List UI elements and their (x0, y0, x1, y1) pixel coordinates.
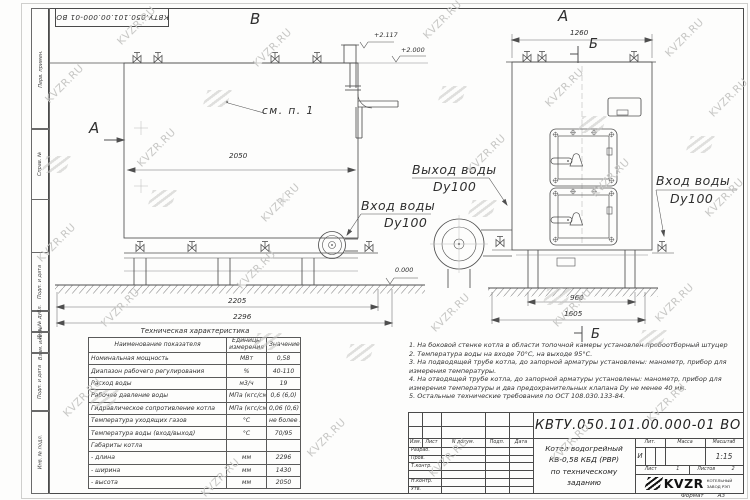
outlet-label: Выход воды (412, 162, 497, 177)
dim-2296: 2296 (233, 312, 251, 321)
cell: 1430 (267, 464, 301, 476)
scale-header: Масштаб (705, 438, 743, 447)
cell: °С (227, 414, 267, 426)
front-dim-top (512, 34, 652, 58)
cell: Габариты котла (89, 439, 227, 451)
cell: МПа (кгс/см2) (227, 402, 267, 414)
kvzr-stripes-icon (644, 477, 663, 490)
col-data: Дата (509, 438, 533, 447)
title-block: КВТУ.050.101.00.000-01 ВО Изм. Лист N до… (408, 412, 744, 494)
col-header: Единицы измерения (227, 338, 267, 353)
sheets-cell: Листов 2 (689, 465, 743, 474)
cell: Температура воды (вход/выход) (89, 427, 227, 439)
cell: Диапазон рабочего регулирования (89, 365, 227, 377)
cell: м3/ч (227, 377, 267, 389)
dim-1605: 1605 (564, 309, 582, 318)
table-row: Диапазон рабочего регулирования%40-110 (89, 365, 301, 377)
doc-title-line2: КВ-0,58 КБД (РВР) (549, 454, 619, 465)
cell: - высота (89, 476, 227, 488)
table-row: Температура воды (вход/выход)°С70/95 (89, 427, 301, 439)
note-item: 3. На подводящей трубе котла, до запорно… (409, 358, 741, 375)
table-row: Габариты котла (89, 439, 301, 451)
outlet-size: Dy100 (433, 179, 476, 194)
cell: - ширина (89, 464, 227, 476)
burner-side (319, 232, 359, 259)
spec-table-title: Техническая характеристика (88, 327, 302, 335)
sheet-cell: Лист 1 (635, 465, 689, 474)
cell: 40-110 (267, 365, 301, 377)
elevation-2117: +2.117 (374, 31, 398, 39)
dim-960: 960 (570, 293, 584, 302)
dim-2205: 2205 (228, 296, 246, 305)
cell: МВт (227, 353, 267, 365)
cell: 0,06 (0,6) (267, 402, 301, 414)
lit-value: И (635, 447, 645, 465)
cell: % (227, 365, 267, 377)
table-row: - ширинамм1430 (89, 464, 301, 476)
row-tkontr: Т.контр. (411, 462, 441, 470)
doc-number: КВТУ.050.101.00.000-01 ВО (533, 413, 743, 438)
row-utv: Утв. (411, 486, 441, 494)
col-izm: Изм. (409, 438, 422, 447)
cell: мм (227, 476, 267, 488)
cell: Гидравлическое сопротивление котла (89, 402, 227, 414)
cell: 2050 (267, 476, 301, 488)
col-doc: N докум. (441, 438, 485, 447)
upper-door (550, 129, 617, 186)
brand-subtitle: КОТЕЛЬНЫЙ ЗАВОД РЭП (707, 478, 733, 488)
col-podp: Подп. (485, 438, 509, 447)
inlet-label-side: Вход воды (361, 198, 435, 213)
col-header: Значение (267, 338, 301, 353)
cell: 0,6 (6,0) (267, 390, 301, 402)
brand-sub-line2: ЗАВОД РЭП (707, 484, 733, 489)
table-row: - длинамм2296 (89, 452, 301, 464)
cell: Рабочее давление воды (89, 390, 227, 402)
technical-notes: 1. На боковой стенке котла в области топ… (409, 341, 741, 401)
scale-value: 1:15 (705, 447, 743, 465)
inlet-label-front: Вход воды (656, 173, 730, 188)
section-label-a-side: А (89, 119, 99, 137)
table-row: Расход водым3/ч19 (89, 377, 301, 389)
section-label-v: В (250, 10, 260, 28)
cell: Расход воды (89, 377, 227, 389)
front-dimensions (492, 292, 645, 324)
row-nkontr: Н.контр. (411, 478, 441, 486)
cell: Температура уходящих газов (89, 414, 227, 426)
lower-door (550, 188, 617, 245)
side-dimensions (57, 289, 392, 327)
inlet-size-front: Dy100 (670, 191, 713, 206)
brand-name: KVZR (664, 476, 704, 491)
cell: не более 280 (267, 414, 301, 426)
sheet-value: 1 (676, 467, 679, 472)
table-row: Номинальная мощностьМВт0,58 (89, 353, 301, 365)
spec-table: Наименование показателя Единицы измерени… (88, 337, 301, 489)
cell: 2296 (267, 452, 301, 464)
row-prov: Пров. (411, 455, 441, 463)
sheets-value: 2 (732, 467, 735, 472)
cell: 0,58 (267, 353, 301, 365)
cell: °С (227, 427, 267, 439)
row-razrab: Разраб. (411, 447, 441, 455)
sheets-label: Листов (697, 467, 715, 472)
inlet-size-side: Dy100 (384, 215, 427, 230)
cell: мм (227, 464, 267, 476)
format-label: Формат А3 (664, 493, 742, 499)
table-row: - высотамм2050 (89, 476, 301, 488)
section-label-b-top: Б (589, 37, 598, 52)
format-value: А3 (718, 493, 725, 499)
company-logo: KVZR КОТЕЛЬНЫЙ ЗАВОД РЭП (635, 474, 743, 493)
dim-2050: 2050 (229, 151, 247, 160)
cell (227, 439, 267, 451)
cell (267, 439, 301, 451)
elevation-2000: +2.000 (401, 46, 425, 54)
cell: - длина (89, 452, 227, 464)
mass-header: Масса (665, 438, 705, 447)
lit-header: Лит. (635, 438, 665, 447)
dim-1260: 1260 (570, 28, 588, 37)
cell: Номинальная мощность (89, 353, 227, 365)
doc-title: Котел водогрейный КВ-0,58 КБД (РВР) по т… (533, 438, 635, 493)
sheet-label: Лист (645, 467, 657, 472)
format-word: Формат (681, 493, 704, 499)
drawing-sheet: Перв. примен. Справ. № Подп. и дата Инв.… (0, 0, 750, 500)
table-row: Рабочее давление водыМПа (кгс/см2)0,6 (6… (89, 390, 301, 402)
elevation-0000: 0.000 (395, 266, 413, 274)
cell: МПа (кгс/см2) (227, 390, 267, 402)
doc-title-line3: по техническому заданию (533, 466, 635, 489)
note-item: 4. На отводящей трубе котла, до запорной… (409, 375, 741, 392)
note-item: 2. Температура воды на входе 70°С, на вы… (409, 350, 741, 359)
cell: 70/95 (267, 427, 301, 439)
view-label-a-front: А (558, 7, 568, 25)
col-list: Лист (422, 438, 441, 447)
note-item: 5. Остальные технические требования по О… (409, 392, 741, 401)
doc-title-line1: Котел водогрейный (545, 443, 623, 454)
section-label-b-bottom: Б (591, 327, 600, 342)
table-header-row: Наименование показателя Единицы измерени… (89, 338, 301, 353)
cell: мм (227, 452, 267, 464)
note-item: 1. На боковой стенке котла в области топ… (409, 341, 741, 350)
col-header: Наименование показателя (89, 338, 227, 353)
table-row: Температура уходящих газов°Сне более 280 (89, 414, 301, 426)
table-row: Гидравлическое сопротивление котлаМПа (к… (89, 402, 301, 414)
cell: 19 (267, 377, 301, 389)
see-note-label: см. п. 1 (262, 105, 315, 117)
centerline-crosses (134, 121, 290, 207)
smoke-fan (430, 215, 512, 288)
spec-table-section: Техническая характеристика Наименование … (88, 327, 302, 489)
